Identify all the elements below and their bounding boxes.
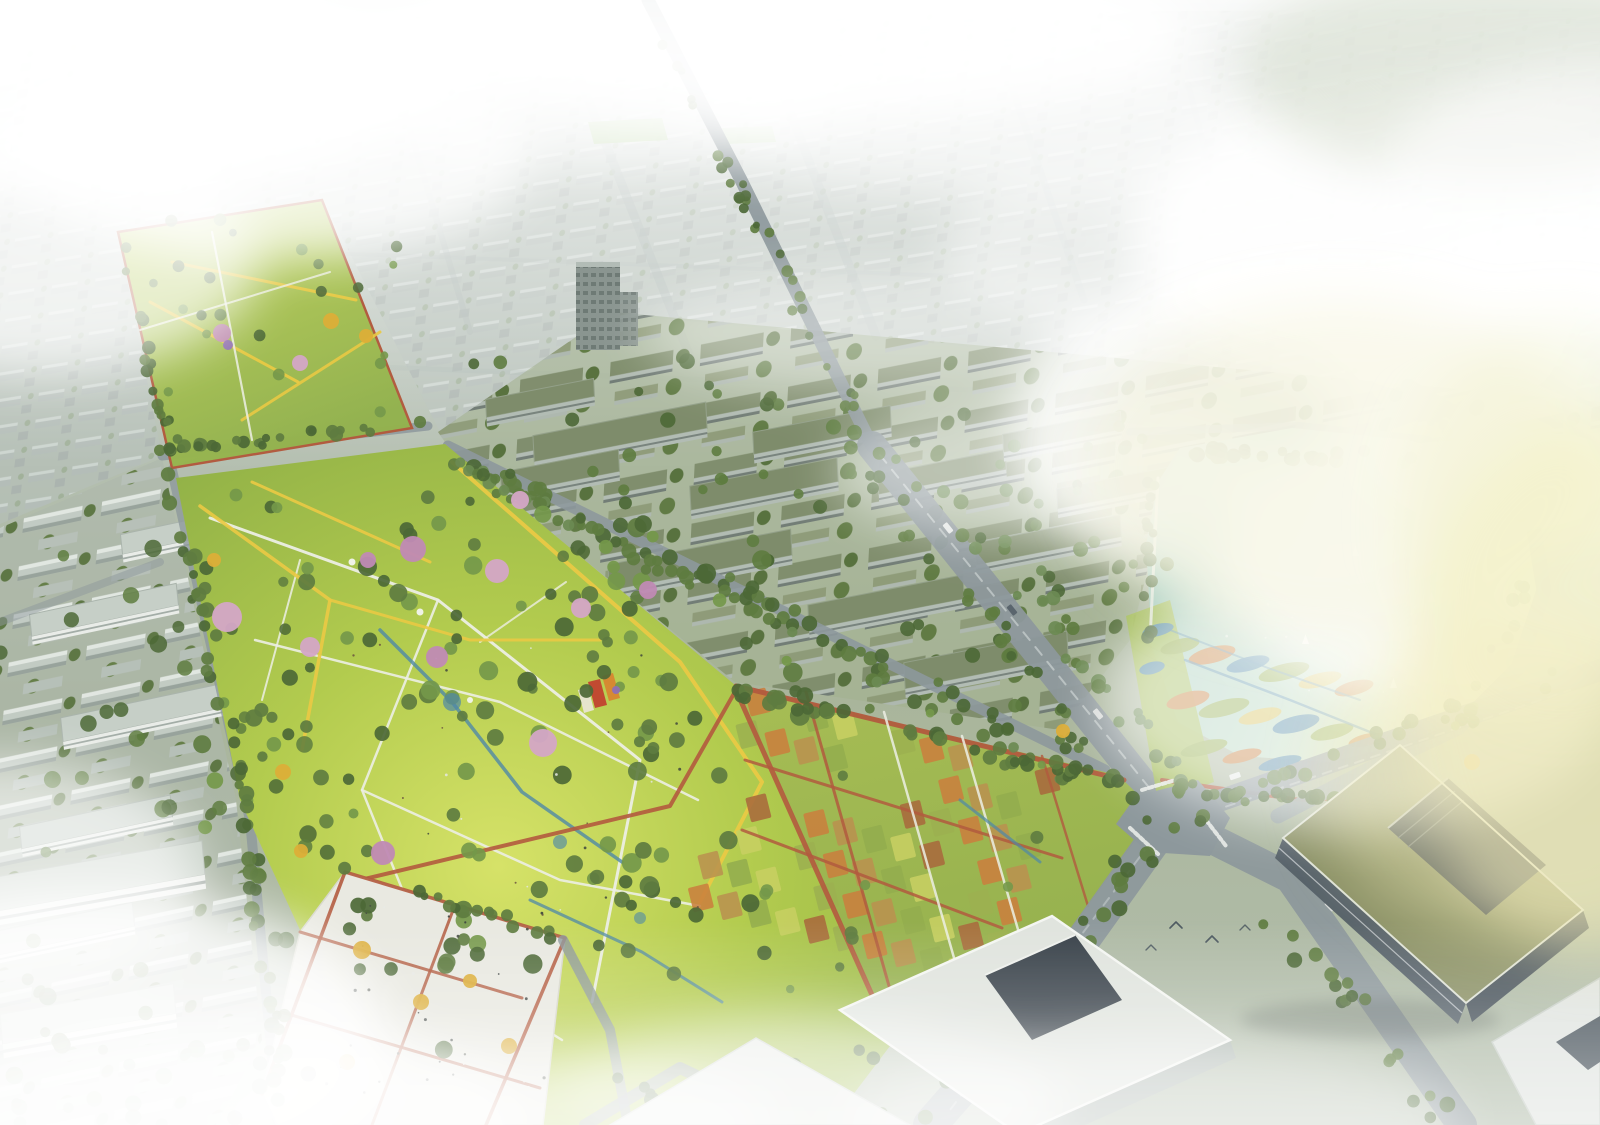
aerial-masterplan-rendering xyxy=(0,0,1600,1125)
bottom-haze xyxy=(0,920,1600,1125)
masterplan-scene xyxy=(0,0,1600,1125)
